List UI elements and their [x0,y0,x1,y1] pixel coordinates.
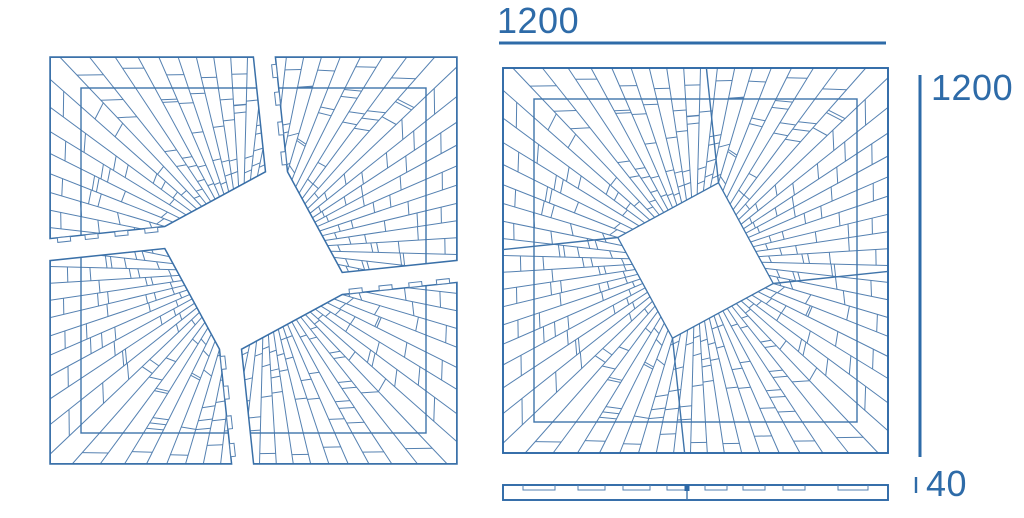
panel-piece-3 [72,57,457,442]
dimension-thickness-label: 40 [926,464,967,504]
side-profile-view [503,485,888,500]
panel-piece-2 [50,57,435,442]
exploded-view [50,57,457,464]
technical-drawing-canvas [0,0,1024,518]
technical-drawing-page: 1200 1200 40 [0,0,1024,518]
dimension-width-label: 1200 [497,1,579,41]
assembled-view [503,68,888,453]
panel-piece-1 [50,79,435,464]
dimension-height-label: 1200 [931,68,1013,108]
